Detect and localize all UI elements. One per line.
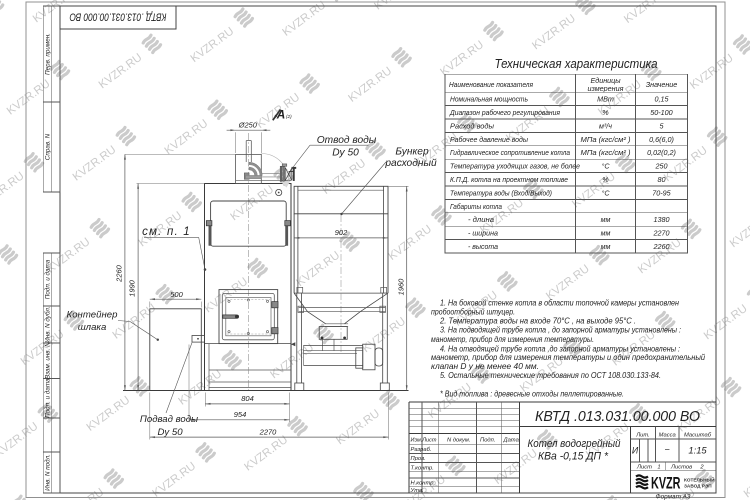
svg-text:Габариты котла: Габариты котла <box>450 202 502 211</box>
svg-text:KVZR.RU: KVZR.RU <box>268 342 316 382</box>
svg-text:%: % <box>602 108 609 117</box>
svg-text:Dy 50: Dy 50 <box>332 147 359 158</box>
svg-text:KVZR.RU: KVZR.RU <box>294 249 342 289</box>
svg-text:Ø250: Ø250 <box>238 120 258 129</box>
svg-text:KVZR.RU: KVZR.RU <box>334 408 382 448</box>
svg-text:1380: 1380 <box>654 215 670 224</box>
svg-text:Дата: Дата <box>503 438 520 444</box>
svg-text:Подп. и дата: Подп. и дата <box>44 378 52 418</box>
svg-text:3. На подводящей трубе котла: 3. На подводящей трубе котла , до запорн… <box>440 326 681 335</box>
svg-text:80: 80 <box>658 175 666 184</box>
svg-text:К.П.Д. котла на проектном топл: К.П.Д. котла на проектном топливе <box>450 175 568 184</box>
svg-text:Лист: Лист <box>636 464 652 470</box>
svg-text:902: 902 <box>335 228 348 237</box>
svg-text:2260: 2260 <box>653 242 670 251</box>
svg-text:–: – <box>664 445 670 454</box>
svg-text:KVZR.RU: KVZR.RU <box>688 52 736 92</box>
svg-text:°С: °С <box>601 188 610 197</box>
svg-text:500: 500 <box>170 290 183 299</box>
svg-text:0,02(0,2): 0,02(0,2) <box>647 148 676 157</box>
svg-text:КОТЕЛЬНЫЙ: КОТЕЛЬНЫЙ <box>684 476 715 483</box>
svg-text:мм: мм <box>601 242 611 251</box>
svg-text:KVZR.RU: KVZR.RU <box>742 461 750 500</box>
svg-text:Н.контр.: Н.контр. <box>411 480 436 486</box>
svg-text:KVZR.RU: KVZR.RU <box>97 52 145 92</box>
svg-text:см. п. 1: см. п. 1 <box>142 226 191 238</box>
svg-text:KVZR.RU: KVZR.RU <box>570 171 618 211</box>
svg-text:А: А <box>276 107 286 121</box>
svg-text:KVZR.RU: KVZR.RU <box>530 13 578 53</box>
svg-text:0,6(6,0): 0,6(6,0) <box>649 135 674 144</box>
svg-text:Формат А3: Формат А3 <box>656 494 691 500</box>
svg-text:KVZR.RU: KVZR.RU <box>71 144 119 184</box>
svg-text:ЗАВОД РЭП: ЗАВОД РЭП <box>684 484 712 489</box>
svg-text:КВа -0,15 ДП *: КВа -0,15 ДП * <box>538 451 609 463</box>
svg-text:KVZR.RU: KVZR.RU <box>346 65 394 105</box>
svg-text:- длина: - длина <box>468 215 494 224</box>
svg-text:Листов: Листов <box>670 464 692 470</box>
svg-text:МПа (кгс/см² ): МПа (кгс/см² ) <box>581 135 631 144</box>
svg-text:%: % <box>602 175 609 184</box>
svg-text:Номинальная мощность: Номинальная мощность <box>450 95 528 104</box>
svg-text:KVZR: KVZR <box>651 475 681 493</box>
svg-text:м³/ч: м³/ч <box>599 121 612 130</box>
svg-text:Подп. и дата: Подп. и дата <box>44 259 52 299</box>
svg-text:шлака: шлака <box>78 322 107 333</box>
svg-text:Гидравлическое сопротивление к: Гидравлическое сопротивление котла <box>450 148 570 157</box>
svg-text:манометр, прибор для измерени: манометр, прибор для измерения температу… <box>431 353 705 362</box>
svg-text:KVZR.RU: KVZR.RU <box>163 118 211 158</box>
svg-text:Инв. N подл.: Инв. N подл. <box>44 454 52 491</box>
svg-text:- ширина: - ширина <box>468 229 498 238</box>
svg-text:KVZR.RU: KVZR.RU <box>622 0 670 26</box>
svg-text:Масса: Масса <box>659 433 677 439</box>
svg-text:KVZR.RU: KVZR.RU <box>728 210 750 250</box>
svg-text:* Вид топлива : древесные от: * Вид топлива : древесные отходы пеллети… <box>440 390 624 399</box>
svg-text:Утв.: Утв. <box>410 488 424 494</box>
svg-text:KVZR.RU: KVZR.RU <box>360 315 408 355</box>
svg-text:KVZR.RU: KVZR.RU <box>426 381 474 421</box>
svg-text:Температура воды (Вход/Выход): Температура воды (Вход/Выход) <box>450 188 552 197</box>
svg-text:KVZR.RU: KVZR.RU <box>203 276 251 316</box>
svg-text:Рабочее давление воды: Рабочее давление воды <box>450 135 529 144</box>
svg-text:расходный: расходный <box>384 158 437 169</box>
svg-text:Отвод воды: Отвод воды <box>317 135 377 146</box>
svg-text:2. Температура воды на входе: 2. Температура воды на входе 70°С , на в… <box>439 317 636 326</box>
svg-text:Пров.: Пров. <box>411 456 426 462</box>
svg-text:KVZR.RU: KVZR.RU <box>5 78 53 118</box>
svg-text:(2): (2) <box>286 114 292 119</box>
svg-text:пробоотборный штуцер.: пробоотборный штуцер. <box>431 308 515 317</box>
svg-text:804: 804 <box>241 394 254 403</box>
svg-text:4. На отводящей трубе котла ,: 4. На отводящей трубе котла ,до запорной… <box>440 344 680 353</box>
svg-text:1960: 1960 <box>396 278 405 296</box>
svg-text:Разраб.: Разраб. <box>411 447 432 453</box>
svg-text:2270: 2270 <box>259 427 278 436</box>
svg-text:Температура уходящих газов, не: Температура уходящих газов, не более <box>450 162 580 171</box>
svg-text:Наименование показателя: Наименование показателя <box>449 80 533 89</box>
svg-text:70-95: 70-95 <box>652 188 671 197</box>
svg-text:KVZR.RU: KVZR.RU <box>85 394 133 434</box>
svg-text:МВт: МВт <box>597 95 614 104</box>
svg-text:Подвад воды: Подвад воды <box>140 414 198 425</box>
svg-text:Расход воды: Расход воды <box>450 121 495 130</box>
svg-text:Справ. N: Справ. N <box>45 133 52 160</box>
svg-text:измерения: измерения <box>588 84 624 93</box>
svg-text:Т.контр.: Т.контр. <box>411 466 434 472</box>
svg-text:2270: 2270 <box>653 229 670 238</box>
svg-text:Контейнер: Контейнер <box>67 310 119 321</box>
svg-text:KVZR.RU: KVZR.RU <box>0 170 27 210</box>
svg-text:1: 1 <box>657 464 660 470</box>
svg-text:954: 954 <box>234 410 247 419</box>
svg-text:Dy 50: Dy 50 <box>157 427 183 438</box>
svg-text:0,15: 0,15 <box>655 95 670 104</box>
svg-text:N докум.: N докум. <box>447 438 470 444</box>
svg-text:Инв. N дубл.: Инв. N дубл. <box>44 306 52 342</box>
svg-text:Лит.: Лит. <box>635 433 650 439</box>
svg-text:KVZR.RU: KVZR.RU <box>544 263 592 303</box>
svg-text:мм: мм <box>601 229 611 238</box>
svg-text:°С: °С <box>601 162 610 171</box>
svg-text:Техническая характеристика: Техническая характеристика <box>495 56 658 71</box>
svg-text:KVZR.RU: KVZR.RU <box>0 262 1 302</box>
svg-text:5: 5 <box>660 121 665 130</box>
svg-text:Перв. примен.: Перв. примен. <box>45 33 52 75</box>
svg-text:- высота: - высота <box>468 242 498 251</box>
svg-text:КВТД .013.031.00.000 ВО: КВТД .013.031.00.000 ВО <box>535 408 700 425</box>
svg-text:KVZR.RU: KVZR.RU <box>438 39 486 79</box>
svg-text:КВТД .013.031.00.000 ВО: КВТД .013.031.00.000 ВО <box>70 10 167 22</box>
svg-text:KVZR.RU: KVZR.RU <box>400 474 448 500</box>
svg-text:клапан D у не менее 40 мм.: клапан D у не менее 40 мм. <box>431 362 539 371</box>
svg-text:KVZR.RU: KVZR.RU <box>242 434 290 474</box>
svg-text:Взам. инв. N: Взам. инв. N <box>45 342 52 379</box>
svg-text:50-100: 50-100 <box>650 108 672 117</box>
svg-text:И: И <box>632 446 639 456</box>
svg-text:250: 250 <box>655 162 668 171</box>
svg-text:Диапазон рабочего регулировани: Диапазон рабочего регулирования <box>449 108 560 117</box>
svg-text:2260: 2260 <box>114 264 123 283</box>
svg-text:KVZR.RU: KVZR.RU <box>0 420 40 460</box>
svg-text:МПа (кгс/см² ): МПа (кгс/см² ) <box>581 148 631 157</box>
svg-text:1. На боковой стенке котла в: 1. На боковой стенке котла в области топ… <box>440 298 679 307</box>
svg-text:Значение: Значение <box>646 80 678 89</box>
svg-text:KVZR.RU: KVZR.RU <box>229 184 277 224</box>
svg-text:Котел водогрейный: Котел водогрейный <box>528 438 621 450</box>
svg-text:5. Остальные технические треб: 5. Остальные технические требования по О… <box>440 371 661 380</box>
svg-text:1990: 1990 <box>128 279 137 297</box>
svg-text:KVZR.RU: KVZR.RU <box>386 223 434 263</box>
svg-text:Изм.Лист: Изм.Лист <box>411 438 437 444</box>
svg-text:1:15: 1:15 <box>688 445 707 456</box>
svg-text:Подп.: Подп. <box>480 438 495 444</box>
svg-text:KVZR.RU: KVZR.RU <box>151 460 199 500</box>
svg-text:KVZR.RU: KVZR.RU <box>189 25 237 65</box>
svg-text:манометр, прибор для измерени: манометр, прибор для измерения температу… <box>431 335 594 344</box>
svg-text:Бункер: Бункер <box>395 147 429 158</box>
svg-text:KVZR.RU: KVZR.RU <box>702 303 750 343</box>
svg-text:мм: мм <box>601 215 611 224</box>
svg-text:Масштаб: Масштаб <box>684 433 712 439</box>
